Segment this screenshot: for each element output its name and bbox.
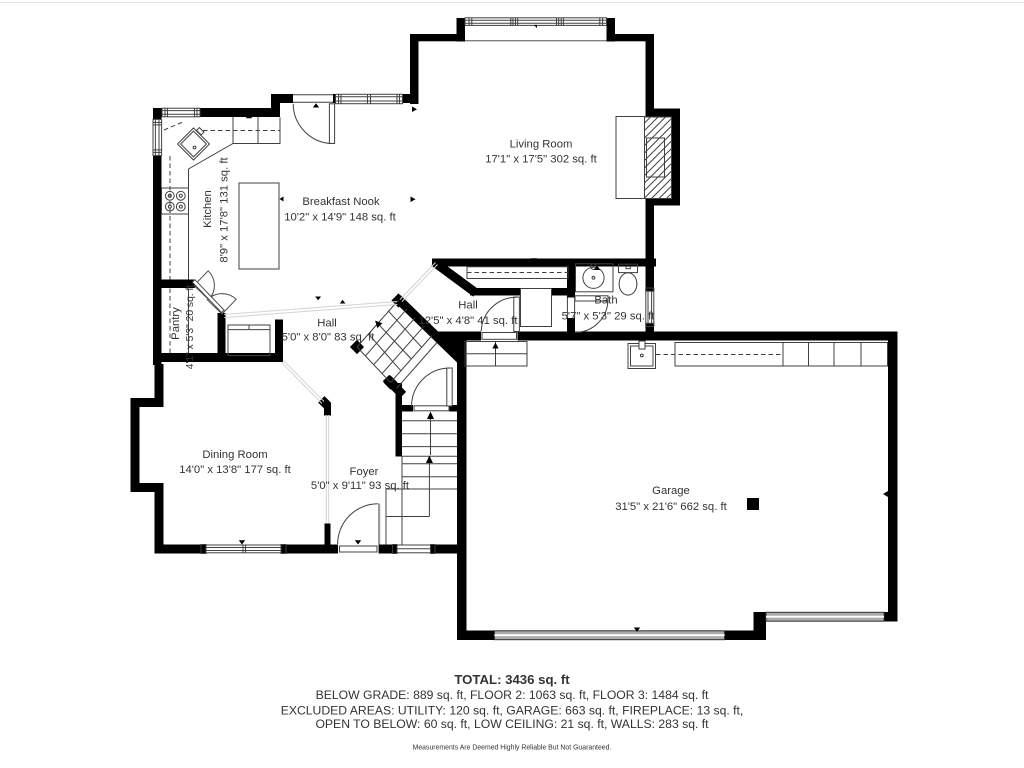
svg-text:12'5" x 4'8" 41 sq. ft: 12'5" x 4'8" 41 sq. ft (418, 315, 518, 327)
svg-text:EXCLUDED AREAS: UTILITY: 120 s: EXCLUDED AREAS: UTILITY: 120 sq. ft, GAR… (281, 704, 744, 718)
svg-text:Measurements Are Deemed Highly: Measurements Are Deemed Highly Reliable … (413, 745, 612, 752)
svg-text:8'9" x 17'8" 131 sq. ft: 8'9" x 17'8" 131 sq. ft (219, 157, 231, 263)
svg-text:14'0" x 13'8" 177 sq. ft: 14'0" x 13'8" 177 sq. ft (179, 464, 291, 476)
svg-text:Hall: Hall (458, 300, 477, 312)
svg-text:5'0" x 9'11" 93 sq. ft: 5'0" x 9'11" 93 sq. ft (311, 480, 410, 492)
svg-text:Hall: Hall (317, 318, 336, 330)
svg-text:17'1" x 17'5" 302 sq. ft: 17'1" x 17'5" 302 sq. ft (485, 154, 597, 166)
svg-text:Kitchen: Kitchen (202, 190, 214, 228)
svg-text:Foyer: Foyer (350, 466, 379, 478)
svg-text:Pantry: Pantry (170, 307, 182, 340)
svg-text:5'0" x 8'0" 83 sq. ft: 5'0" x 8'0" 83 sq. ft (282, 332, 376, 344)
svg-text:4'1" x 5'3" 20 sq. ft: 4'1" x 5'3" 20 sq. ft (185, 285, 196, 370)
svg-text:OPEN TO BELOW: 60 sq. ft, LOW: OPEN TO BELOW: 60 sq. ft, LOW CEILING: 2… (315, 717, 709, 731)
svg-text:TOTAL: 3436 sq. ft: TOTAL: 3436 sq. ft (454, 672, 570, 687)
svg-text:Dining Room: Dining Room (202, 449, 267, 461)
svg-text:Garage: Garage (652, 485, 690, 497)
svg-text:Living Room: Living Room (510, 139, 573, 151)
svg-text:5'7" x 5'3" 29 sq. ft: 5'7" x 5'3" 29 sq. ft (562, 311, 656, 323)
svg-text:Bath: Bath (594, 295, 617, 307)
svg-text:Breakfast Nook: Breakfast Nook (302, 196, 380, 208)
svg-text:31'5" x 21'6" 662 sq. ft: 31'5" x 21'6" 662 sq. ft (615, 501, 727, 513)
svg-text:10'2" x 14'9" 148 sq. ft: 10'2" x 14'9" 148 sq. ft (284, 212, 396, 224)
svg-text:BELOW GRADE: 889 sq. ft, FLOOR: BELOW GRADE: 889 sq. ft, FLOOR 2: 1063 s… (316, 688, 709, 702)
